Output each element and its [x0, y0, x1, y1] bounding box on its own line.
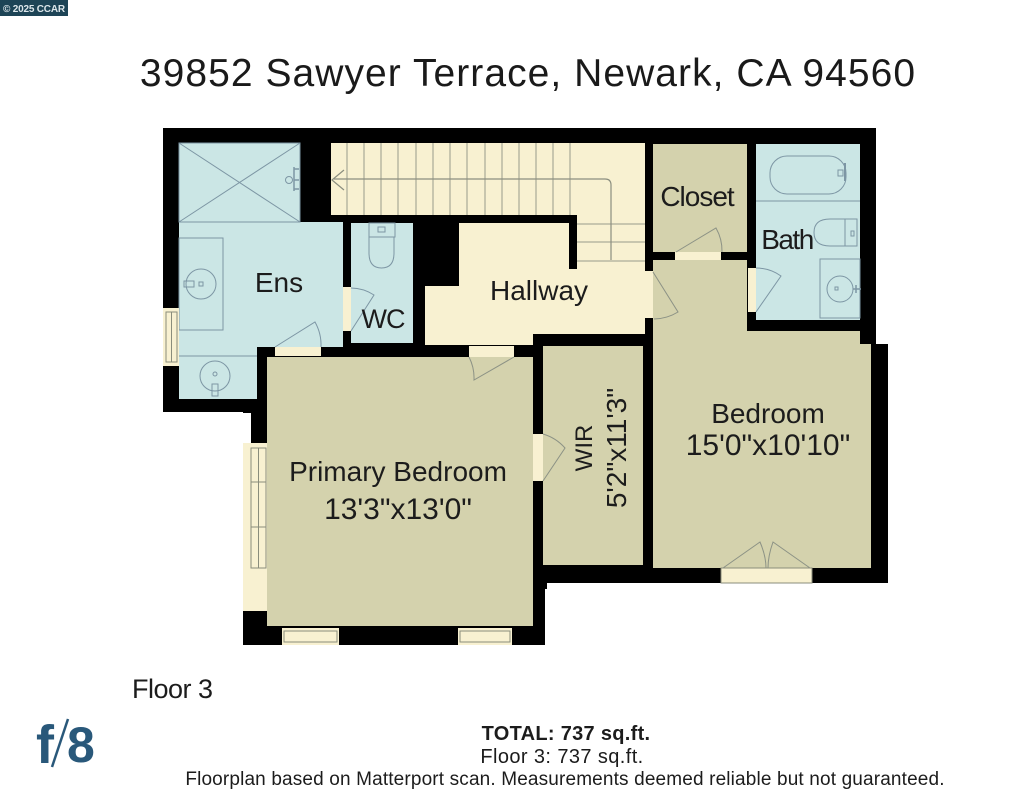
- svg-text:WIR: WIR: [571, 425, 598, 472]
- svg-text:Floor 3: 737 sq.ft.: Floor 3: 737 sq.ft.: [480, 746, 643, 768]
- svg-text:Closet: Closet: [660, 181, 735, 212]
- svg-text:WC: WC: [362, 304, 405, 334]
- svg-text:8: 8: [67, 717, 95, 773]
- svg-text:Ens: Ens: [255, 267, 303, 298]
- svg-text:Floor 3: Floor 3: [132, 674, 213, 704]
- svg-text:39852 Sawyer Terrace, Newark,: 39852 Sawyer Terrace, Newark, CA 94560: [140, 52, 916, 95]
- svg-text:Bedroom: Bedroom: [711, 398, 825, 429]
- svg-text:5'2"x11'3": 5'2"x11'3": [601, 388, 632, 508]
- svg-text:Floorplan based on Matterport: Floorplan based on Matterport scan. Meas…: [185, 769, 944, 790]
- svg-text:15'0"x10'10": 15'0"x10'10": [686, 429, 851, 462]
- svg-text:© 2025 CCAR: © 2025 CCAR: [3, 4, 66, 15]
- svg-text:13'3"x13'0": 13'3"x13'0": [324, 493, 472, 526]
- svg-text:TOTAL: 737 sq.ft.: TOTAL: 737 sq.ft.: [482, 723, 651, 745]
- svg-text:Primary Bedroom: Primary Bedroom: [289, 456, 507, 487]
- svg-text:Hallway: Hallway: [490, 275, 588, 306]
- svg-text:Bath: Bath: [761, 224, 813, 255]
